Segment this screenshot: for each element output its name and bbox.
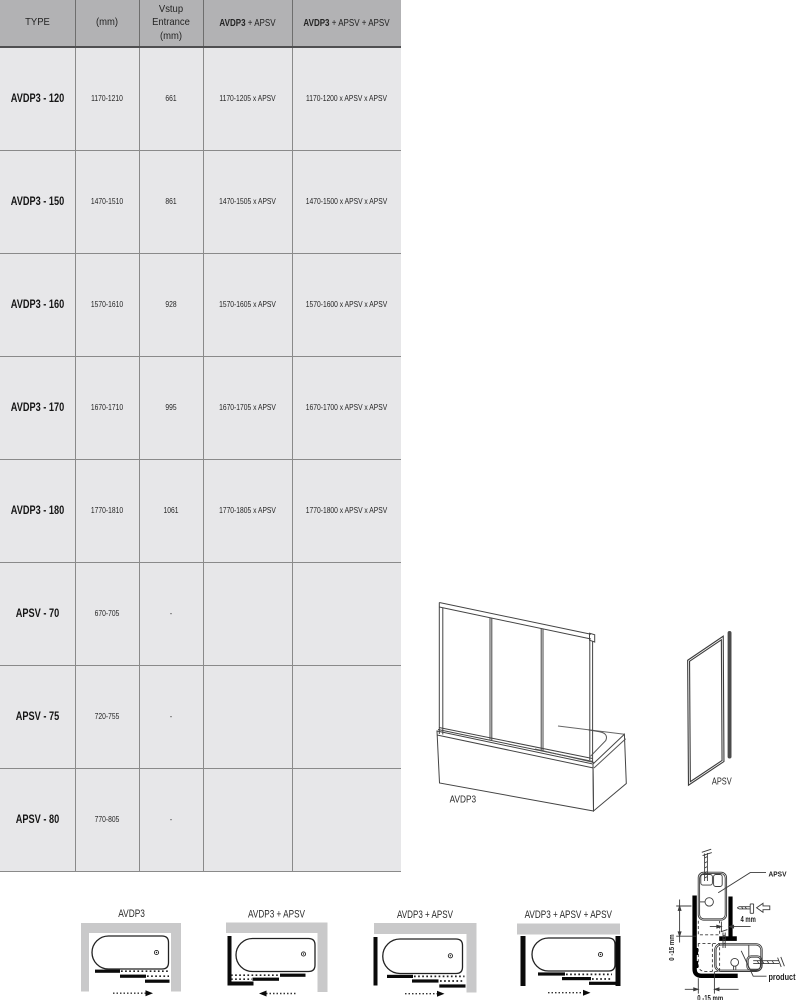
svg-text:AVDP3: AVDP3 <box>118 908 145 920</box>
svg-text:0 -15 mm: 0 -15 mm <box>667 934 676 961</box>
svg-text:4 mm: 4 mm <box>741 915 756 924</box>
svg-text:product: product <box>769 972 796 983</box>
svg-text:AVDP3 + APSV: AVDP3 + APSV <box>397 909 453 921</box>
svg-text:APSV: APSV <box>769 870 787 879</box>
svg-text:AVDP3 + APSV: AVDP3 + APSV <box>248 909 305 921</box>
svg-text:0 -15 mm: 0 -15 mm <box>697 994 723 1000</box>
svg-text:AVDP3 + APSV + APSV: AVDP3 + APSV + APSV <box>525 909 613 921</box>
svg-text:AVDP3: AVDP3 <box>450 795 477 806</box>
svg-text:APSV: APSV <box>712 777 732 788</box>
